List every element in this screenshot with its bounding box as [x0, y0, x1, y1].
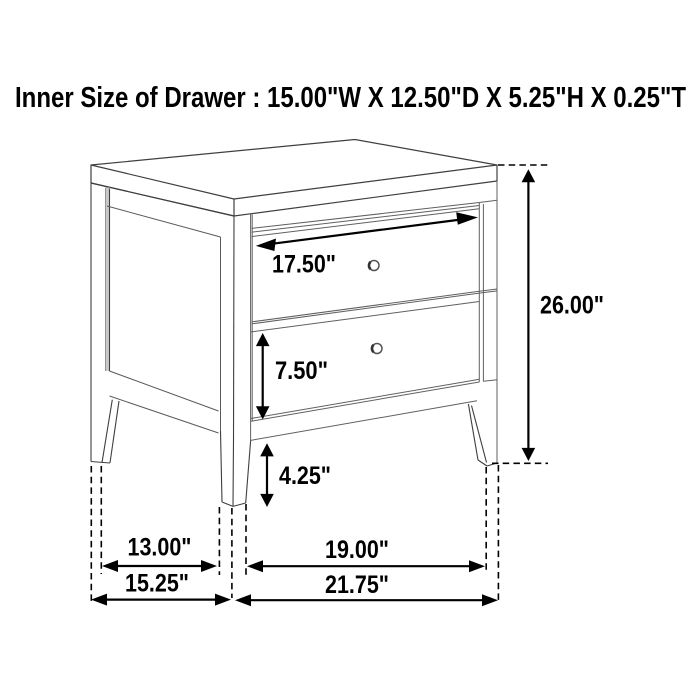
svg-text:4.25": 4.25" [279, 462, 331, 490]
svg-text:15.25": 15.25" [125, 570, 189, 598]
svg-text:Inner Size of Drawer : 15.00"W: Inner Size of Drawer : 15.00"W X 12.50"D… [15, 82, 686, 114]
svg-text:13.00": 13.00" [128, 534, 192, 562]
svg-text:17.50": 17.50" [272, 251, 336, 279]
svg-text:7.50": 7.50" [275, 357, 328, 385]
svg-text:26.00": 26.00" [540, 292, 604, 320]
svg-text:19.00": 19.00" [325, 536, 389, 564]
svg-text:21.75": 21.75" [325, 571, 389, 599]
